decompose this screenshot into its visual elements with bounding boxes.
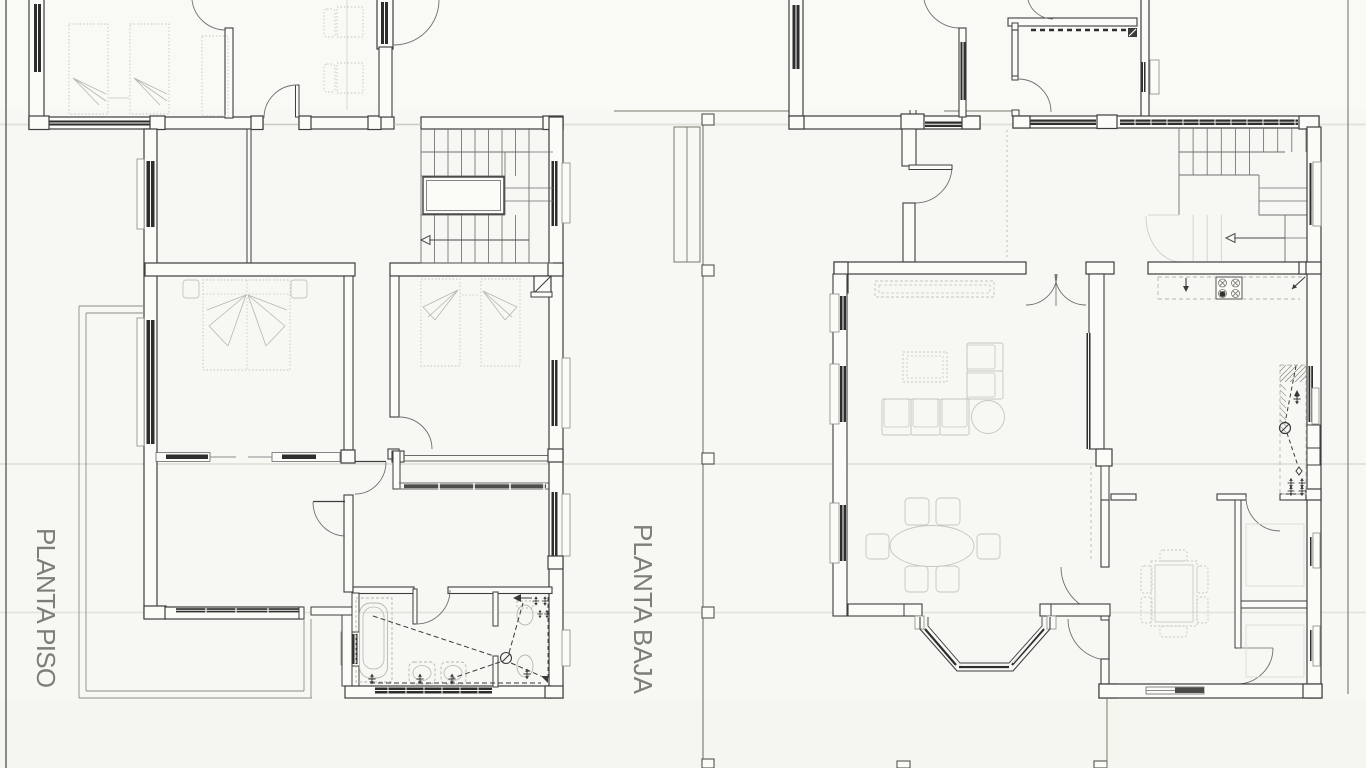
svg-text:PLANTA PISO: PLANTA PISO: [31, 528, 61, 687]
svg-text:PLANTA BAJA: PLANTA BAJA: [628, 524, 658, 695]
